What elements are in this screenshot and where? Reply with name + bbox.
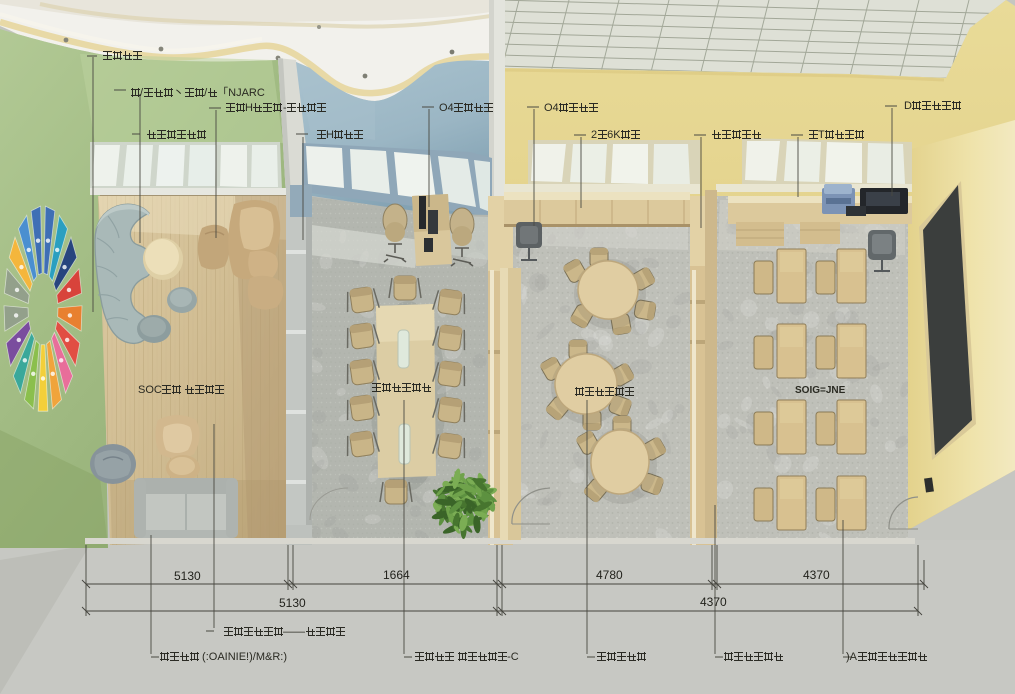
svg-text:5130: 5130 xyxy=(174,569,201,583)
svg-text:4370: 4370 xyxy=(700,595,727,609)
svg-text:5130: 5130 xyxy=(279,596,306,610)
svg-text:4370: 4370 xyxy=(803,568,830,582)
svg-text:1664: 1664 xyxy=(383,568,410,582)
svg-text:4780: 4780 xyxy=(596,568,623,582)
